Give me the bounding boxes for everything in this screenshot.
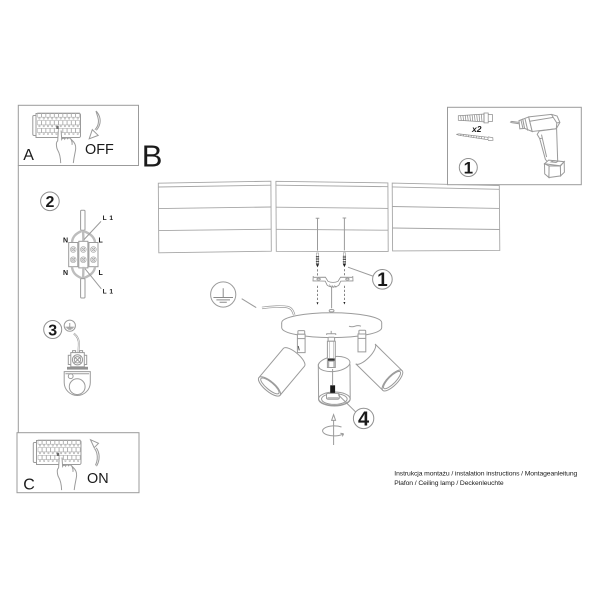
svg-text:2: 2 [45, 194, 54, 211]
svg-text:x2: x2 [471, 124, 482, 134]
svg-text:B: B [142, 138, 163, 173]
svg-text:C: C [23, 477, 35, 494]
svg-text:N: N [63, 270, 68, 277]
svg-text:3: 3 [48, 322, 57, 339]
svg-text:L 1: L 1 [103, 289, 114, 296]
svg-text:1: 1 [377, 270, 388, 291]
svg-text:4: 4 [358, 409, 370, 431]
svg-text:L: L [99, 238, 104, 245]
svg-text:ON: ON [87, 471, 109, 487]
svg-text:A: A [23, 147, 34, 164]
svg-text:L 1: L 1 [103, 215, 114, 222]
svg-text:Instrukcja montażu / instalati: Instrukcja montażu / instalation instruc… [394, 471, 577, 478]
svg-text:Plafon / Ceiling lamp / Decken: Plafon / Ceiling lamp / Deckenleuchte [394, 480, 504, 487]
svg-text:OFF: OFF [85, 142, 114, 158]
svg-text:N: N [63, 238, 68, 245]
svg-text:1: 1 [464, 159, 473, 178]
svg-text:L: L [99, 270, 104, 277]
